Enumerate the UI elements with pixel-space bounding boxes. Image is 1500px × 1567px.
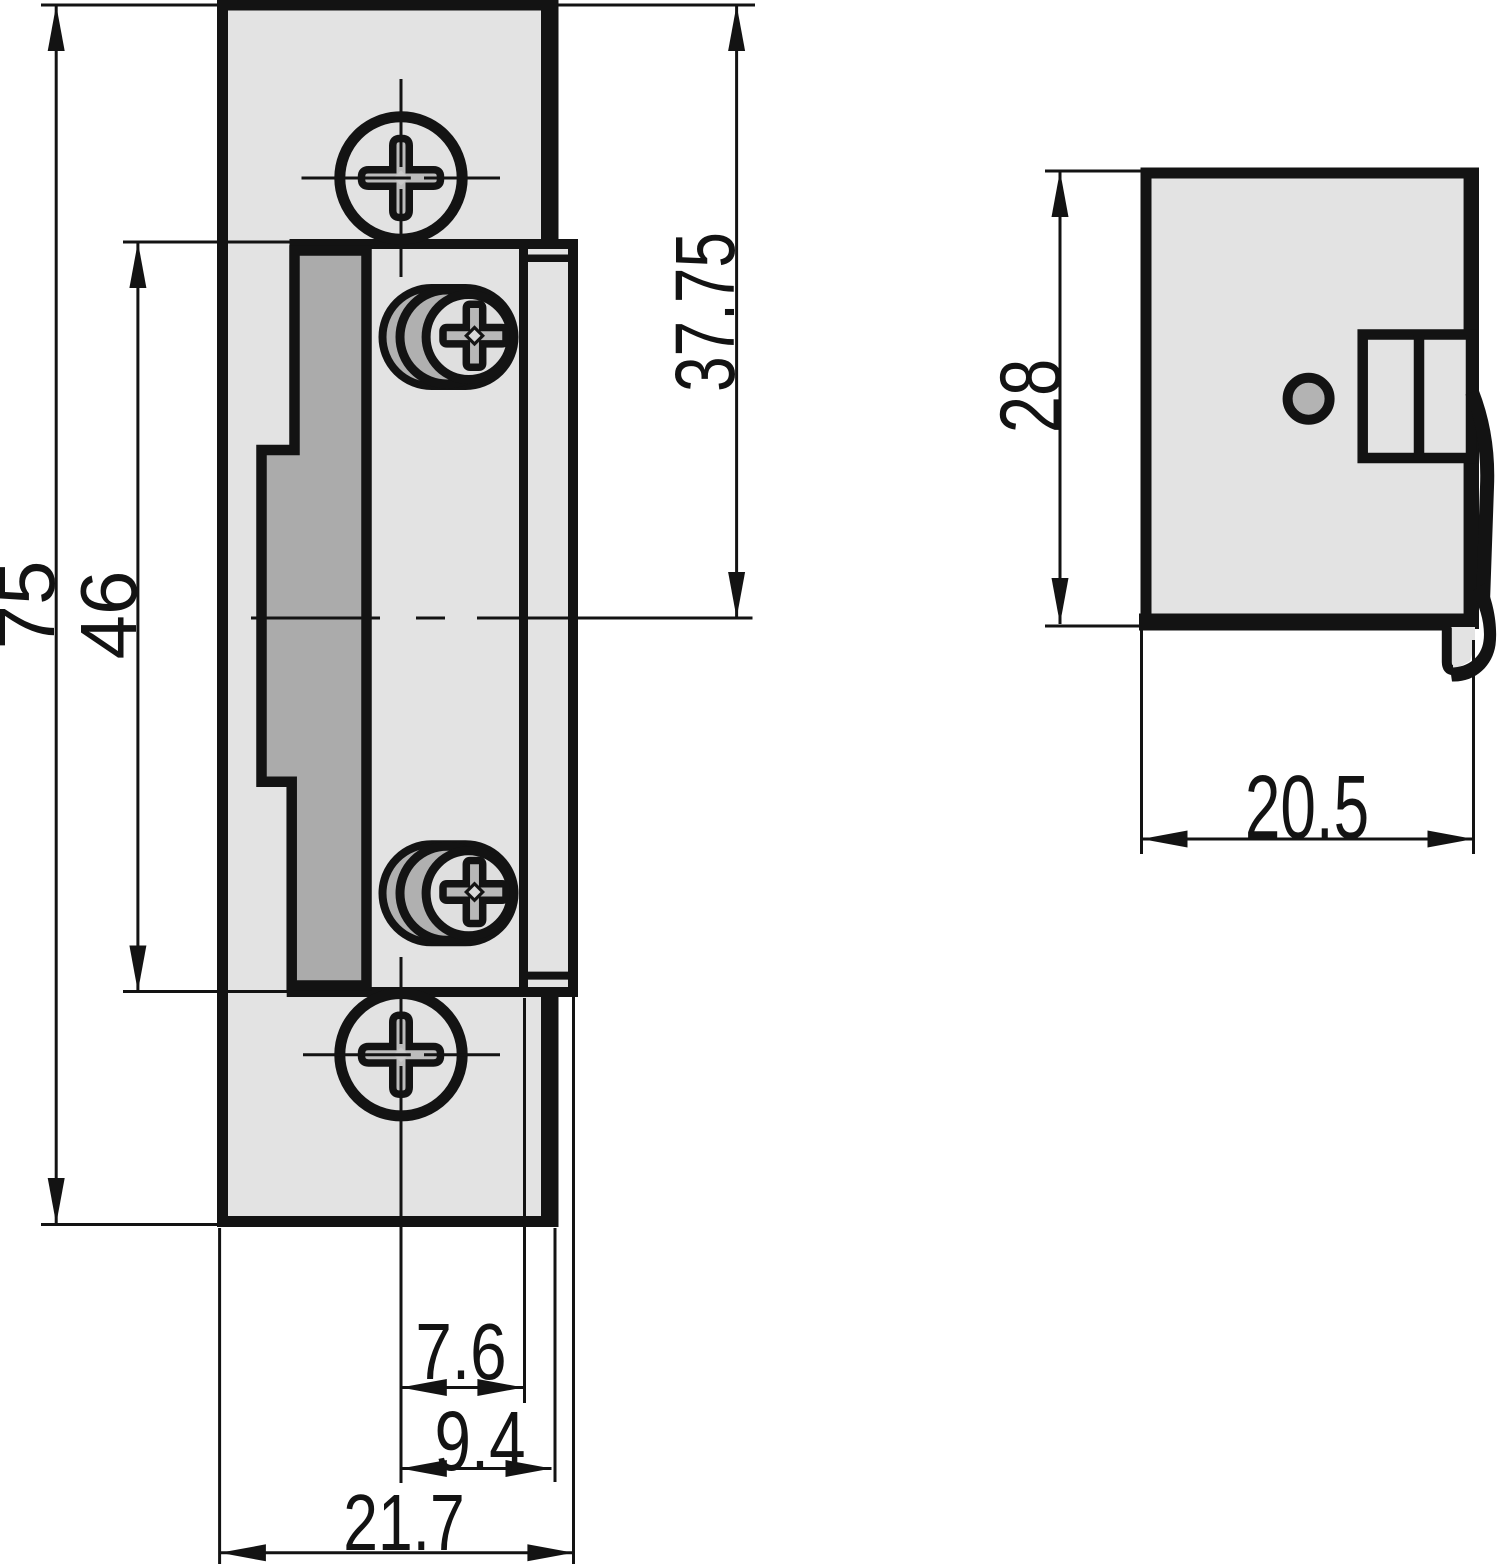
svg-text:28: 28 [983,359,1079,434]
svg-text:37.75: 37.75 [657,232,752,392]
svg-text:75: 75 [0,561,71,650]
svg-text:7.6: 7.6 [415,1307,506,1397]
svg-text:46: 46 [64,571,153,660]
svg-text:21.7: 21.7 [343,1479,464,1567]
svg-text:9.4: 9.4 [434,1394,525,1488]
svg-text:20.5: 20.5 [1245,756,1369,857]
